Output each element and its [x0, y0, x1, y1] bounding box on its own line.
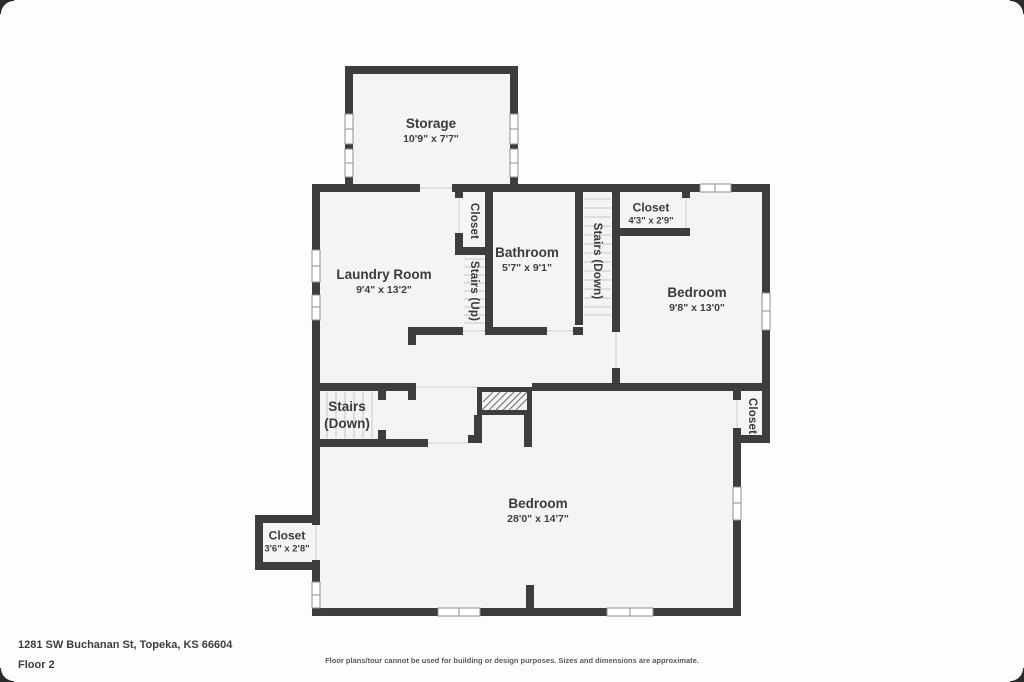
room-label-bathroom: Bathroom 5'7" x 9'1": [495, 245, 559, 275]
room-name: Storage: [403, 116, 459, 133]
room-dims: 4'3" x 2'9": [628, 216, 673, 228]
room-name: Bathroom: [495, 245, 559, 262]
room-dims: 10'9" x 7'7": [403, 133, 459, 146]
room-dims: 28'0" x 14'7": [507, 513, 569, 526]
room-name: Closet: [628, 201, 673, 216]
property-address: 1281 SW Buchanan St, Topeka, KS 66604: [18, 639, 232, 651]
room-name: Bedroom: [507, 496, 569, 513]
corner-mark: [1010, 0, 1024, 14]
room-label-closet-top-right: Closet 4'3" x 2'9": [628, 201, 673, 228]
room-dims: 3'6" x 2'8": [264, 544, 309, 556]
room-dims: 9'8" x 13'0": [667, 302, 726, 315]
room-label-stairs-up: Stairs (Up): [468, 261, 480, 321]
room-label-stairs-down-upper: Stairs (Down): [591, 223, 603, 300]
room-name: (Down): [324, 416, 370, 433]
room-label-closet-upper: Closet: [468, 203, 480, 239]
room-label-closet-right: Closet: [746, 398, 758, 434]
room-name: Laundry Room: [336, 267, 431, 284]
room-name: Stairs: [324, 399, 370, 416]
room-label-closet-bottom-left: Closet 3'6" x 2'8": [264, 529, 309, 556]
room-name: Bedroom: [667, 285, 726, 302]
room-dims: 5'7" x 9'1": [495, 262, 559, 275]
room-dims: 9'4" x 13'2": [336, 284, 431, 297]
chimney-hatch: [477, 387, 532, 415]
floorplan-page: Storage 10'9" x 7'7" Laundry Room 9'4" x…: [0, 0, 1024, 682]
floorplan-drawing: [0, 0, 1024, 682]
room-label-bedroom-lower: Bedroom 28'0" x 14'7": [507, 496, 569, 526]
room-label-laundry: Laundry Room 9'4" x 13'2": [336, 267, 431, 297]
room-label-storage: Storage 10'9" x 7'7": [403, 116, 459, 146]
room-name: Closet: [264, 529, 309, 544]
disclaimer-text: Floor plans/tour cannot be used for buil…: [0, 656, 1024, 665]
corner-mark: [1010, 668, 1024, 682]
corner-mark: [0, 668, 14, 682]
room-label-stairs-down-lower: Stairs (Down): [324, 399, 370, 433]
room-label-bedroom-upper: Bedroom 9'8" x 13'0": [667, 285, 726, 315]
corner-mark: [0, 0, 14, 14]
